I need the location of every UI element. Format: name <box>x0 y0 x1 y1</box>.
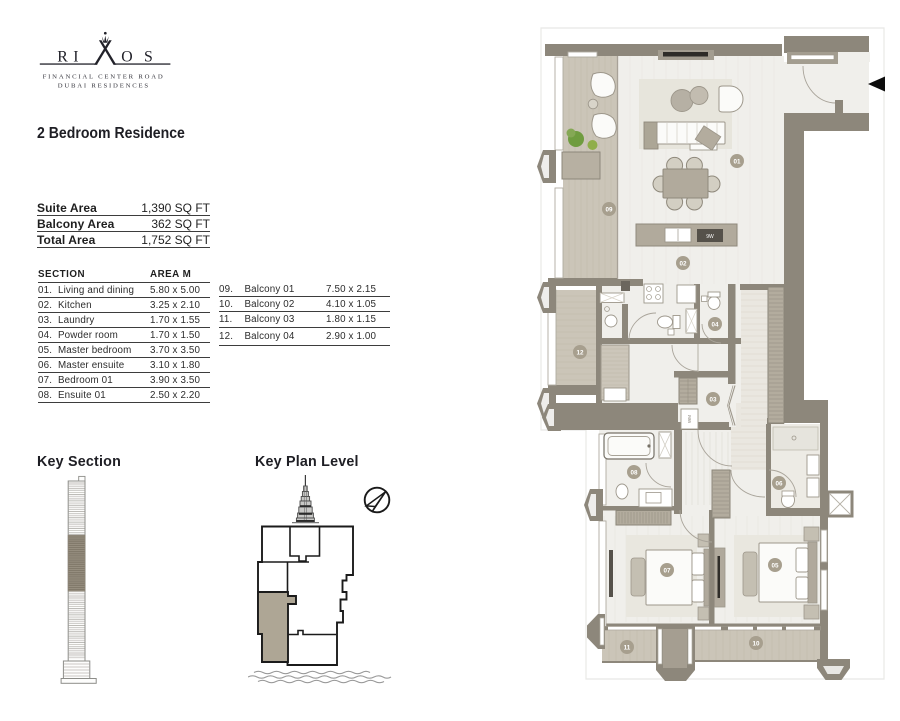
svg-text:10: 10 <box>752 640 760 647</box>
svg-text:01: 01 <box>733 158 741 165</box>
svg-text:WM: WM <box>687 415 692 423</box>
svg-text:S: S <box>144 49 153 66</box>
svg-text:04: 04 <box>711 321 719 328</box>
svg-text:08: 08 <box>630 469 638 476</box>
svg-text:9W: 9W <box>706 234 714 240</box>
svg-text:R: R <box>57 49 68 66</box>
svg-text:05: 05 <box>771 562 779 569</box>
svg-text:O: O <box>121 49 132 66</box>
svg-text:02: 02 <box>679 260 687 267</box>
svg-text:06: 06 <box>775 480 783 487</box>
svg-text:07: 07 <box>663 567 671 574</box>
svg-text:11: 11 <box>624 644 631 651</box>
svg-text:09: 09 <box>605 206 613 213</box>
svg-text:I: I <box>73 49 78 66</box>
svg-text:FINANCIAL CENTER ROAD: FINANCIAL CENTER ROAD <box>43 73 165 80</box>
svg-text:12: 12 <box>576 349 584 356</box>
svg-text:03: 03 <box>709 396 717 403</box>
svg-text:DUBAI RESIDENCES: DUBAI RESIDENCES <box>58 82 150 89</box>
